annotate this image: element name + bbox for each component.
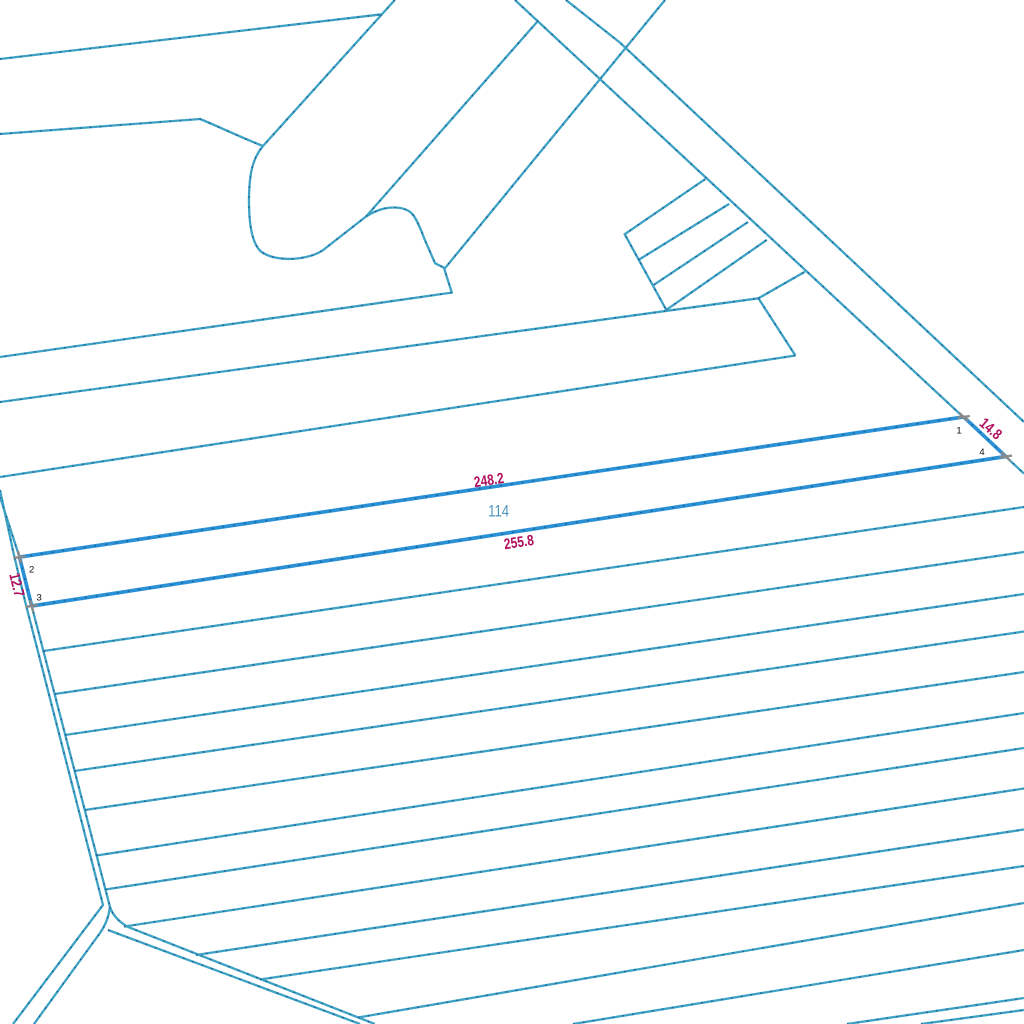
svg-text:1: 1 [956, 426, 961, 437]
svg-text:2: 2 [29, 565, 34, 576]
svg-text:3: 3 [37, 593, 42, 604]
svg-text:4: 4 [979, 447, 984, 458]
svg-text:114: 114 [488, 502, 509, 521]
